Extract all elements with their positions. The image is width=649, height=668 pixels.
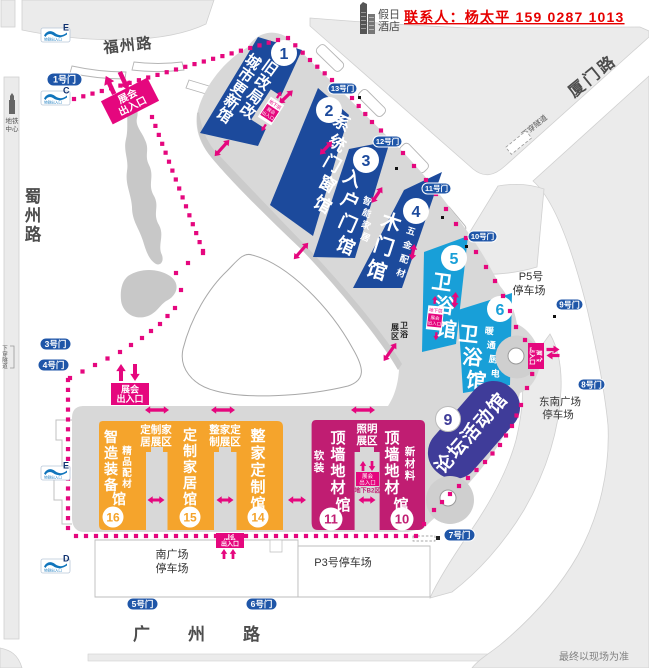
svg-text:路: 路 <box>25 224 42 244</box>
svg-text:地铁出入口: 地铁出入口 <box>44 100 62 105</box>
svg-text:品: 品 <box>122 457 132 468</box>
svg-text:定: 定 <box>183 427 197 443</box>
svg-text:地铁: 地铁 <box>6 116 20 125</box>
svg-text:5号门: 5号门 <box>132 599 154 609</box>
svg-text:顶: 顶 <box>330 430 345 447</box>
svg-text:制: 制 <box>250 478 265 496</box>
svg-text:6: 6 <box>496 302 505 319</box>
svg-text:地: 地 <box>384 462 399 480</box>
svg-text:材: 材 <box>384 479 399 497</box>
svg-text:整: 整 <box>250 427 265 445</box>
svg-text:假日: 假日 <box>378 7 400 21</box>
svg-text:材: 材 <box>330 479 345 497</box>
svg-text:居展区: 居展区 <box>140 436 172 448</box>
svg-text:3号门: 3号门 <box>45 339 67 349</box>
svg-text:展: 展 <box>390 323 399 332</box>
svg-text:穿: 穿 <box>2 350 8 358</box>
svg-text:顶: 顶 <box>384 430 399 447</box>
svg-text:出入口: 出入口 <box>359 479 376 487</box>
svg-text:家: 家 <box>250 444 265 462</box>
svg-text:制展区: 制展区 <box>209 435 241 448</box>
svg-text:装: 装 <box>313 461 325 474</box>
svg-text:D: D <box>63 554 70 564</box>
svg-text:通: 通 <box>486 339 496 351</box>
svg-text:材: 材 <box>121 478 132 490</box>
svg-text:地: 地 <box>330 462 345 480</box>
svg-text:P3号停车场: P3号停车场 <box>314 555 371 569</box>
svg-text:浴: 浴 <box>461 345 484 370</box>
svg-text:4: 4 <box>412 204 421 221</box>
svg-text:4号门: 4号门 <box>43 360 65 370</box>
svg-text:馆: 馆 <box>183 491 197 507</box>
svg-text:区: 区 <box>391 332 399 341</box>
svg-text:5: 5 <box>450 251 459 268</box>
svg-text:墙: 墙 <box>384 446 399 464</box>
svg-text:卫: 卫 <box>400 321 408 330</box>
svg-text:2: 2 <box>325 103 334 120</box>
svg-text:E: E <box>63 461 69 471</box>
svg-text:家: 家 <box>183 459 198 475</box>
svg-text:中心: 中心 <box>6 124 20 133</box>
svg-text:地下B2区: 地下B2区 <box>355 487 381 495</box>
svg-text:卫: 卫 <box>458 323 480 347</box>
svg-text:酒店: 酒店 <box>378 19 400 33</box>
svg-text:广州路: 广州路 <box>133 624 298 644</box>
svg-text:精: 精 <box>122 445 132 457</box>
svg-text:10号门: 10号门 <box>471 231 494 241</box>
svg-text:软: 软 <box>314 449 325 462</box>
svg-text:10: 10 <box>395 512 409 527</box>
svg-text:材: 材 <box>404 457 416 470</box>
svg-text:3: 3 <box>362 153 371 170</box>
svg-text:料: 料 <box>405 469 416 482</box>
svg-text:停车场: 停车场 <box>156 561 189 575</box>
svg-text:9: 9 <box>444 412 453 429</box>
svg-text:地铁出入口: 地铁出入口 <box>44 37 62 42</box>
svg-text:16: 16 <box>106 510 120 524</box>
svg-text:居: 居 <box>183 475 197 491</box>
svg-text:制: 制 <box>183 443 197 459</box>
svg-text:配: 配 <box>122 468 132 479</box>
svg-text:道: 道 <box>2 362 8 370</box>
svg-text:南广场: 南广场 <box>156 547 189 561</box>
svg-text:展会: 展会 <box>121 384 140 395</box>
svg-text:造: 造 <box>104 445 118 461</box>
svg-text:整家定: 整家定 <box>208 423 241 436</box>
svg-text:浴: 浴 <box>400 329 409 339</box>
svg-text:馆: 馆 <box>112 491 126 507</box>
svg-text:电: 电 <box>490 367 500 379</box>
svg-text:智: 智 <box>103 429 118 445</box>
svg-text:展区: 展区 <box>357 435 378 447</box>
svg-text:停车场: 停车场 <box>542 408 574 421</box>
svg-text:最终以现场为准: 最终以现场为准 <box>559 650 629 663</box>
svg-text:出入口: 出入口 <box>116 393 143 404</box>
svg-text:11: 11 <box>324 512 338 527</box>
svg-text:蜀: 蜀 <box>25 187 42 206</box>
svg-text:墙: 墙 <box>330 446 345 464</box>
svg-text:照明: 照明 <box>357 423 378 435</box>
svg-text:卫: 卫 <box>430 271 453 296</box>
svg-text:C: C <box>63 86 70 96</box>
svg-text:7号门: 7号门 <box>449 530 471 540</box>
svg-text:8号门: 8号门 <box>581 379 601 389</box>
svg-text:1号门: 1号门 <box>53 74 76 85</box>
svg-text:定: 定 <box>250 461 265 479</box>
svg-text:14: 14 <box>251 510 265 524</box>
svg-text:13号门: 13号门 <box>331 83 354 93</box>
svg-text:地铁出入口: 地铁出入口 <box>44 475 62 480</box>
svg-text:定制家: 定制家 <box>139 423 172 436</box>
svg-text:出入口: 出入口 <box>221 540 239 548</box>
svg-text:12号门: 12号门 <box>376 136 399 146</box>
svg-text:展会: 展会 <box>362 472 374 480</box>
svg-text:停车场: 停车场 <box>513 283 546 297</box>
svg-text:9号门: 9号门 <box>559 299 579 309</box>
svg-text:新: 新 <box>405 445 416 458</box>
svg-text:装: 装 <box>103 461 119 477</box>
svg-text:隧: 隧 <box>2 356 8 364</box>
svg-text:6号门: 6号门 <box>251 599 273 609</box>
svg-text:东南广场: 东南广场 <box>539 395 581 408</box>
svg-text:下: 下 <box>2 345 8 352</box>
svg-text:E: E <box>63 23 69 33</box>
svg-text:P5号: P5号 <box>519 270 543 283</box>
svg-text:15: 15 <box>183 510 197 524</box>
svg-text:1: 1 <box>280 46 289 63</box>
svg-text:11号门: 11号门 <box>425 183 448 193</box>
svg-text:联系人：杨太平 159 0287 1013: 联系人：杨太平 159 0287 1013 <box>404 9 625 25</box>
svg-text:州: 州 <box>24 206 42 225</box>
svg-text:地铁出入口: 地铁出入口 <box>44 568 62 573</box>
